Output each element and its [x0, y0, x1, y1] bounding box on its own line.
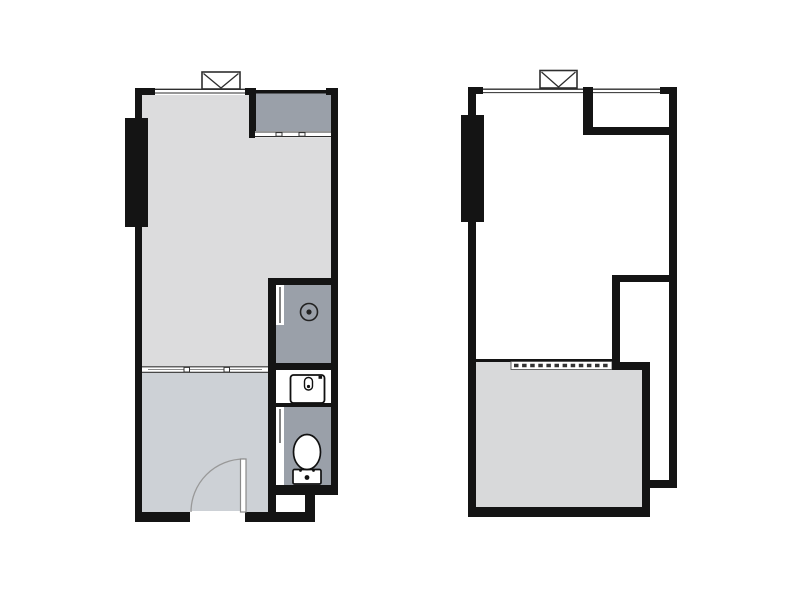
floor-plan-right	[461, 71, 677, 518]
column	[461, 115, 484, 222]
kitchen-door-icon	[276, 285, 284, 325]
floor-plan-left	[125, 72, 338, 523]
window-icon	[483, 71, 660, 95]
dashed-partition-icon	[511, 362, 612, 370]
balcony-sliding-door-icon	[255, 131, 331, 138]
sink-icon	[291, 375, 325, 403]
floor-plan-canvas	[0, 0, 800, 600]
floor-plans-image	[0, 0, 800, 600]
balcony	[255, 93, 331, 131]
kitchen	[276, 285, 331, 363]
window-icon	[155, 72, 245, 95]
column	[125, 118, 148, 227]
bathroom-door-icon	[276, 407, 284, 485]
toilet-icon	[293, 435, 321, 485]
sliding-partition-icon	[142, 366, 268, 373]
bedroom	[142, 367, 268, 512]
highlighted-room	[476, 362, 642, 507]
